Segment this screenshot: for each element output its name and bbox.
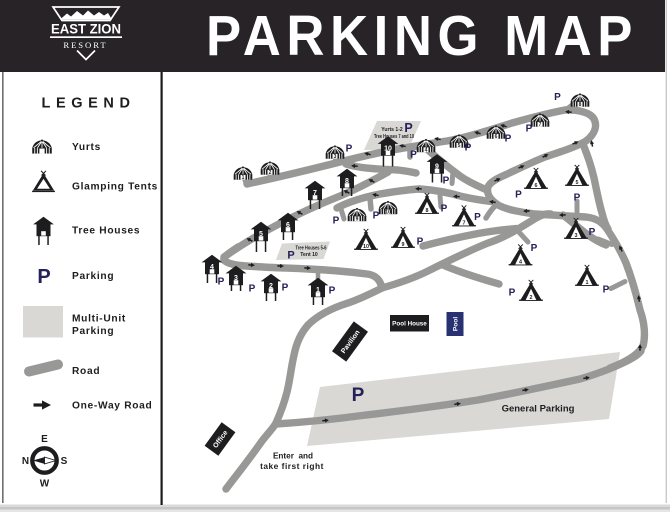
svg-text:10: 10: [363, 244, 369, 250]
svg-text:RESORT: RESORT: [63, 40, 107, 50]
svg-text:8: 8: [345, 178, 349, 185]
svg-text:5: 5: [576, 180, 579, 186]
svg-text:EAST ZION: EAST ZION: [51, 22, 121, 37]
svg-text:General Parking: General Parking: [502, 404, 575, 415]
svg-text:Tree Houses 5-6: Tree Houses 5-6: [296, 246, 327, 252]
svg-text:P: P: [531, 243, 538, 254]
svg-text:3: 3: [334, 154, 337, 160]
svg-text:2: 2: [269, 170, 272, 176]
svg-text:P: P: [249, 284, 256, 295]
svg-text:P: P: [474, 212, 481, 223]
svg-text:7: 7: [463, 221, 466, 227]
svg-text:P: P: [352, 385, 365, 406]
svg-text:P: P: [333, 216, 340, 227]
svg-text:2: 2: [530, 295, 533, 301]
svg-text:Yurts: Yurts: [72, 142, 101, 153]
svg-text:One-Way Road: One-Way Road: [72, 401, 152, 412]
svg-text:Multi-Unit: Multi-Unit: [72, 314, 126, 325]
svg-text:P: P: [554, 92, 561, 103]
svg-text:Pool House: Pool House: [392, 321, 427, 328]
svg-text:LEGEND: LEGEND: [42, 96, 136, 112]
svg-text:Enter and: Enter and: [273, 452, 313, 461]
svg-text:3: 3: [575, 233, 578, 239]
svg-text:4: 4: [519, 260, 522, 266]
svg-text:7: 7: [313, 190, 317, 197]
svg-text:6: 6: [495, 134, 498, 140]
svg-text:P: P: [465, 143, 472, 154]
svg-text:4: 4: [425, 148, 428, 154]
svg-text:P: P: [441, 204, 448, 215]
svg-text:P: P: [515, 190, 522, 201]
svg-text:P: P: [505, 134, 512, 145]
svg-text:10: 10: [385, 210, 391, 216]
svg-text:3: 3: [234, 275, 238, 282]
svg-text:8: 8: [579, 102, 582, 108]
svg-text:P: P: [417, 237, 424, 248]
svg-text:6: 6: [286, 222, 290, 229]
svg-text:9: 9: [402, 242, 405, 248]
svg-text:Tent 10: Tent 10: [300, 252, 318, 258]
svg-text:P: P: [443, 176, 450, 187]
svg-text:S: S: [61, 456, 68, 467]
svg-text:1: 1: [586, 280, 589, 286]
svg-text:7: 7: [539, 122, 542, 128]
svg-text:2: 2: [269, 283, 273, 290]
svg-text:P: P: [526, 124, 533, 135]
svg-text:P: P: [509, 288, 516, 299]
svg-text:W: W: [40, 479, 50, 490]
svg-text:Pool: Pool: [452, 317, 459, 331]
svg-text:P: P: [218, 277, 225, 288]
svg-text:P: P: [329, 286, 336, 297]
svg-text:Parking: Parking: [72, 326, 114, 337]
svg-text:E: E: [41, 434, 48, 445]
svg-text:P: P: [346, 144, 353, 155]
svg-text:N: N: [22, 456, 29, 467]
svg-text:5: 5: [259, 231, 263, 238]
svg-text:take first right: take first right: [260, 461, 324, 471]
svg-text:P: P: [603, 285, 610, 296]
svg-text:1: 1: [242, 175, 245, 181]
svg-text:P: P: [282, 283, 289, 294]
svg-text:9: 9: [356, 217, 359, 223]
svg-text:6: 6: [535, 183, 538, 189]
svg-text:PARKING MAP: PARKING MAP: [206, 4, 638, 68]
svg-text:Tree Houses: Tree Houses: [72, 226, 140, 237]
svg-text:8: 8: [426, 208, 429, 214]
svg-text:9: 9: [435, 164, 439, 171]
svg-text:P: P: [404, 121, 412, 135]
svg-text:1: 1: [316, 287, 320, 294]
svg-text:P: P: [574, 193, 581, 204]
svg-text:Parking: Parking: [72, 271, 114, 282]
svg-text:10: 10: [384, 146, 392, 153]
svg-text:5: 5: [458, 143, 461, 149]
svg-text:Glamping Tents: Glamping Tents: [72, 182, 158, 193]
svg-text:P: P: [287, 250, 294, 262]
svg-text:P: P: [410, 150, 417, 161]
svg-text:P: P: [37, 266, 50, 288]
svg-text:Road: Road: [72, 366, 100, 377]
svg-text:P: P: [373, 211, 380, 222]
svg-text:Yurts 1-2: Yurts 1-2: [381, 127, 403, 133]
svg-text:4: 4: [210, 264, 214, 271]
svg-text:P: P: [589, 227, 596, 238]
